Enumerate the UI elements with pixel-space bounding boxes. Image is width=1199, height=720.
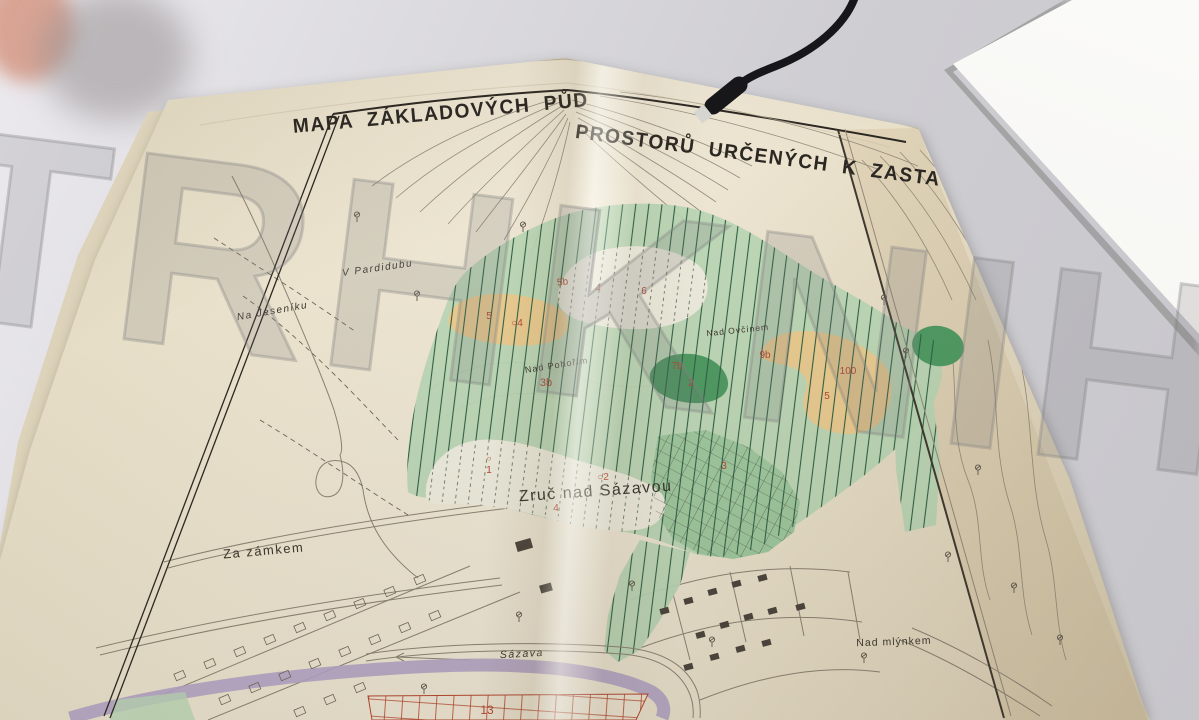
flood-grid [368, 694, 648, 720]
map-label: Sázava [500, 647, 545, 661]
map-drawing: V Pardidubu Na Jeseníku Nad Ovčínem Nad … [0, 0, 1199, 720]
red-marker: 5b [556, 276, 569, 289]
red-marker: ○4 [511, 318, 523, 329]
map-label: Nad mlýnkem [856, 635, 932, 650]
red-marker: 9b [759, 350, 771, 361]
red-marker: 3b [540, 377, 552, 389]
red-marker: 4 [553, 503, 559, 514]
red-marker: 7b [671, 361, 683, 372]
map-label: V Pardidubu [341, 258, 413, 279]
red-marker: ○2 [597, 472, 609, 483]
map-paper: V Pardidubu Na Jeseníku Nad Ovčínem Nad … [0, 0, 1199, 720]
red-marker: 13 [480, 703, 494, 717]
red-marker: 6 [641, 286, 647, 297]
map-paper-wrap: V Pardidubu Na Jeseníku Nad Ovčínem Nad … [0, 0, 1199, 720]
red-marker: 2 [688, 378, 694, 389]
photo-of-map: V Pardidubu Na Jeseníku Nad Ovčínem Nad … [0, 0, 1199, 720]
dashed-tracks [214, 238, 408, 515]
red-marker: 4 [595, 283, 601, 294]
red-marker: 1 [486, 465, 492, 476]
corner-green [110, 692, 195, 720]
red-marker: 5 [824, 391, 830, 402]
red-marker: 5 [486, 311, 492, 322]
map-label: Za zámkem [222, 539, 304, 561]
red-marker: 3 [721, 461, 727, 472]
red-marker: 100 [840, 366, 857, 377]
red-marker: ○ [487, 454, 492, 463]
